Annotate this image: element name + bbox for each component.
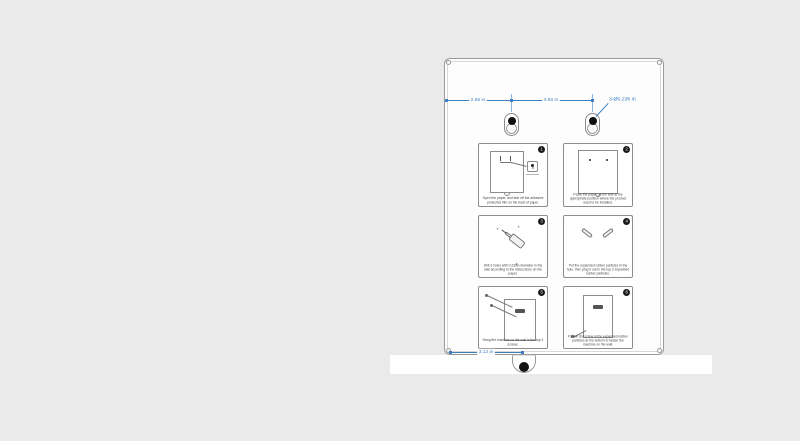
keyhole-screw-hole	[589, 117, 597, 125]
hole-diameter-callout-label: 3-Ø0.236 in	[609, 97, 636, 102]
device-logo-label	[593, 305, 603, 309]
dimension-left-spacing-label: 2.55 in	[469, 97, 487, 103]
rubber-plug-icon	[581, 228, 593, 239]
adhesive-detail-icon	[527, 161, 538, 172]
dimension-endpoint-marker	[510, 99, 513, 102]
extension-line-left-hole	[511, 94, 512, 112]
bottom-screw-hole	[519, 362, 529, 372]
dimension-endpoint-marker	[591, 99, 594, 102]
drill-icon	[501, 228, 528, 252]
step-caption: Fix the 3rd screw in the expanded rubber…	[566, 335, 630, 347]
step-number: 2	[625, 147, 627, 151]
corner-mark-top-left	[446, 60, 451, 65]
dimension-center-spacing-label: 3.50 in	[542, 97, 560, 103]
extension-line-right-hole	[592, 94, 593, 112]
adhesive-dot-icon	[532, 167, 534, 169]
step-number: 3	[540, 219, 542, 223]
device-icon	[583, 295, 613, 338]
screw-head-icon	[490, 304, 493, 307]
keyhole-slot-left	[504, 113, 519, 136]
step-caption: Put the expanded rubber particles in the…	[566, 264, 630, 276]
step-number: 6	[625, 290, 627, 294]
screw-head-icon	[485, 294, 488, 297]
detail-micro-caption	[526, 174, 539, 175]
step-number-badge: 6	[623, 289, 630, 296]
instruction-panel-3: 3 + + + Drill 3 holes with 0.236in diame…	[478, 215, 548, 278]
keyhole-slot-right	[585, 113, 600, 136]
step-number: 1	[540, 147, 542, 151]
drill-point-mark-icon: +	[518, 226, 520, 230]
dimension-endpoint-marker	[445, 99, 448, 102]
step-number-badge: 1	[538, 146, 545, 153]
step-caption: Drill 3 holes with 0.236in diameter in t…	[481, 264, 545, 276]
drill-point-mark-icon: +	[497, 228, 499, 232]
hole-mark-icon	[589, 159, 591, 161]
keyhole-mark-icon	[500, 156, 501, 161]
top-dimension-line	[446, 100, 593, 101]
step-caption: Paste the paper on the wall at the appro…	[566, 193, 630, 205]
hole-mark-icon	[606, 159, 608, 161]
step-number: 4	[625, 219, 627, 223]
corner-mark-bottom-right	[657, 348, 662, 353]
step-number-badge: 2	[623, 146, 630, 153]
device-logo-label	[515, 309, 525, 313]
step-caption: Open the paper, and tear off the adhesiv…	[481, 197, 545, 205]
template-tab-icon	[504, 193, 510, 196]
instruction-panel-6: 6 Fix the 3rd screw in the expanded rubb…	[563, 286, 633, 349]
instruction-panel-5: 5 Hang the machine on the wall in the to…	[478, 286, 548, 349]
template-paper-icon	[490, 151, 524, 193]
keyhole-mark-icon	[510, 156, 511, 161]
bottom-white-band	[390, 355, 712, 374]
rubber-plug-icon	[602, 228, 614, 239]
step-number: 5	[540, 290, 542, 294]
bracket-line	[500, 162, 511, 163]
dimension-endpoint-marker	[449, 351, 452, 354]
instruction-panel-1: 1 Open the paper, and tear off the adhes…	[478, 143, 548, 207]
step-number-badge: 3	[538, 218, 545, 225]
step-caption: Hang the machine on the wall in the top …	[481, 339, 545, 347]
step-number-badge: 5	[538, 289, 545, 296]
mounting-template-drawing: 2.55 in 3.50 in 3-Ø0.236 in 1 Open the p…	[0, 0, 800, 441]
dimension-endpoint-marker	[521, 351, 524, 354]
dimension-bottom-offset-label: 3.12 in	[477, 349, 495, 355]
template-paper-icon	[578, 150, 618, 194]
instruction-panel-4: 4 Put the expanded rubber particles in t…	[563, 215, 633, 278]
keyhole-screw-hole	[508, 117, 516, 125]
step-number-badge: 4	[623, 218, 630, 225]
corner-mark-top-right	[657, 60, 662, 65]
instruction-panel-2: 2 Paste the paper on the wall at the app…	[563, 143, 633, 207]
